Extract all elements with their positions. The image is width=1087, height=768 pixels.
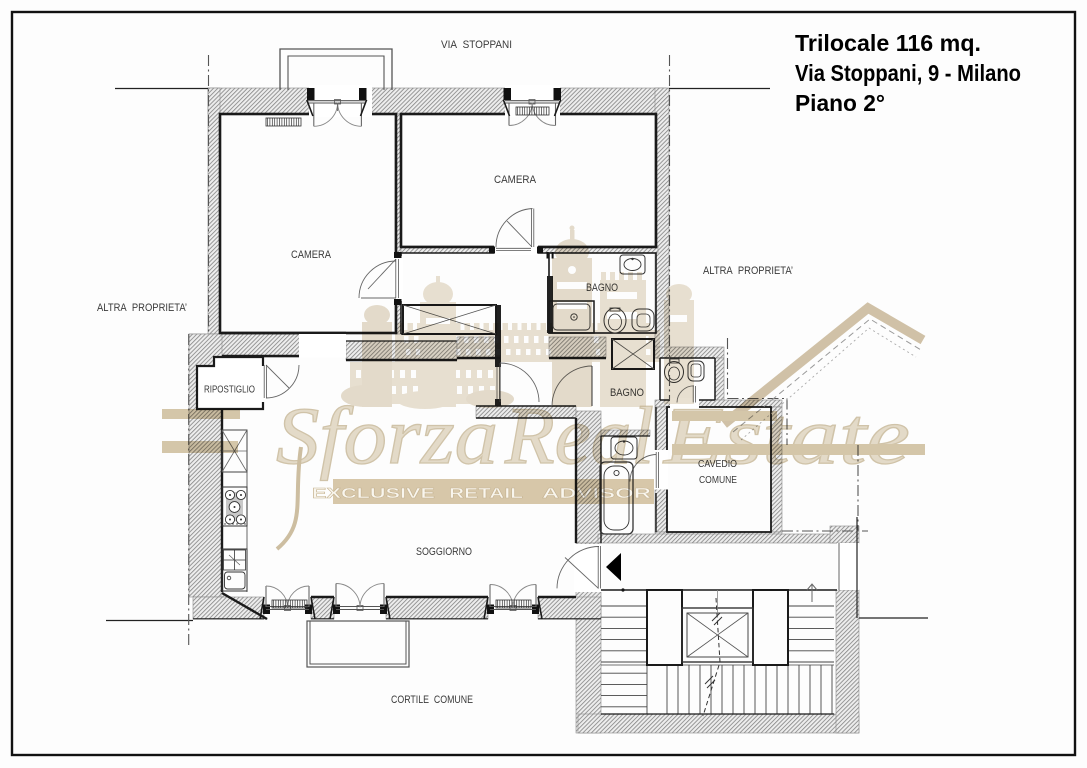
svg-text:Estate: Estate: [663, 390, 910, 481]
svg-text:CORTILE COMUNE: CORTILE COMUNE: [391, 694, 473, 706]
svg-text:CAMERA: CAMERA: [291, 249, 332, 261]
svg-text:SOGGIORNO: SOGGIORNO: [416, 546, 472, 558]
svg-text:Trilocale 116 mq.: Trilocale 116 mq.: [795, 30, 981, 56]
svg-text:ALTRA PROPRIETA’: ALTRA PROPRIETA’: [97, 302, 187, 314]
svg-text:ALTRA PROPRIETA’: ALTRA PROPRIETA’: [703, 265, 793, 277]
svg-text:CAMERA: CAMERA: [494, 174, 537, 186]
svg-text:Sforza: Sforza: [276, 390, 498, 481]
svg-text:Real: Real: [504, 390, 654, 481]
svg-text:Piano 2°: Piano 2°: [795, 90, 885, 116]
svg-text:RIPOSTIGLIO: RIPOSTIGLIO: [204, 384, 255, 396]
svg-text:Via Stoppani, 9 - Milano: Via Stoppani, 9 - Milano: [795, 60, 1021, 86]
svg-text:RETAIL: RETAIL: [449, 486, 523, 502]
svg-text:ADVISOR: ADVISOR: [542, 486, 652, 502]
svg-text:VIA STOPPANI: VIA STOPPANI: [441, 39, 512, 51]
svg-text:EXCLUSIVE: EXCLUSIVE: [312, 486, 435, 502]
